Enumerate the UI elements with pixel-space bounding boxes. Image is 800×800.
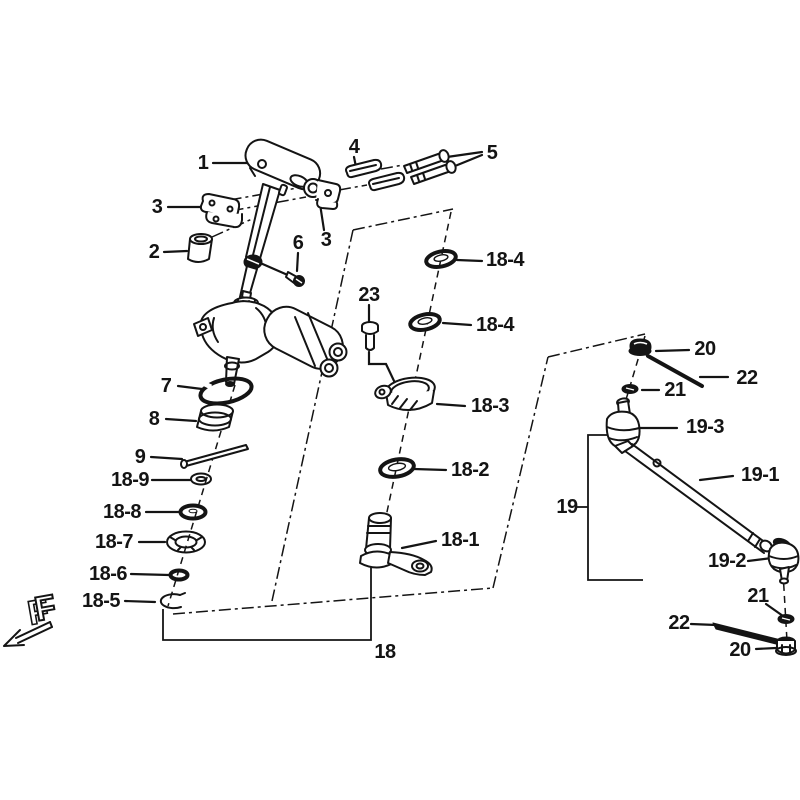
column-bushing: [188, 234, 212, 262]
part-label-19: 19: [556, 497, 577, 517]
part-label-20b: 20: [729, 640, 750, 660]
part-20-nut-upper: [629, 339, 651, 356]
part-label-9: 9: [135, 447, 146, 467]
part-18-8-washer: [181, 506, 206, 519]
part-label-18-1: 18-1: [441, 530, 479, 550]
bracket-18: [163, 567, 371, 640]
part-label-18-2: 18-2: [451, 460, 489, 480]
part-label-22a: 22: [736, 368, 757, 388]
part-label-19-2: 19-2: [708, 551, 746, 571]
part-label-4: 4: [349, 137, 360, 157]
part-label-18-9: 18-9: [111, 470, 149, 490]
part-18-4-grommet-upper: [425, 249, 457, 270]
part-label-18: 18: [374, 642, 395, 662]
steering-gearbox: [194, 291, 350, 387]
part-label-1: 1: [198, 153, 209, 173]
part-18-7-bearing: [167, 532, 205, 553]
part-8-boot: [197, 405, 233, 431]
part-18-5-snapring: [161, 593, 185, 608]
part-label-3a: 3: [152, 197, 163, 217]
part-label-19-3: 19-3: [686, 417, 724, 437]
part-label-21b: 21: [747, 586, 768, 606]
part-label-18-4a: 18-4: [486, 250, 524, 270]
part-label-8: 8: [149, 409, 160, 429]
bracket-19: [588, 435, 643, 580]
part-label-18-7: 18-7: [95, 532, 133, 552]
part-20-nut-lower: [776, 637, 796, 655]
part-label-5: 5: [487, 143, 498, 163]
part-21-washer-upper: [622, 385, 638, 394]
part-18-3-clamp-cap: [373, 375, 436, 410]
column-lower-stack: [161, 374, 254, 608]
part-label-6: 6: [293, 233, 304, 253]
part-label-7: 7: [161, 376, 172, 396]
bolts-5: [404, 149, 457, 184]
part-label-23: 23: [358, 285, 379, 305]
part-19-3-tie-rod-end: [607, 398, 640, 453]
part-21-washer-lower: [778, 615, 794, 624]
column-clamp-left: [201, 194, 242, 227]
part-18-2-oring: [379, 457, 415, 480]
part-18-6-oring: [171, 571, 188, 580]
part-9-pin: [181, 445, 248, 468]
sleeve-4: [346, 160, 404, 190]
part-label-18-8: 18-8: [103, 502, 141, 522]
part-label-19-1: 19-1: [741, 465, 779, 485]
part-18-4-grommet-lower: [409, 312, 441, 333]
parts-diagram: F F 1 3 2 4 5 6 3 23 7 8 9 18-9 18-8 18-…: [0, 0, 800, 800]
part-19-1-rod: [625, 444, 774, 554]
part-23-bolt: [362, 322, 378, 350]
part-label-20a: 20: [694, 339, 715, 359]
part-19-2-tie-rod-end: [769, 536, 799, 583]
bolt-6: [286, 272, 305, 287]
column-clamp-right: [304, 179, 340, 209]
part-7-retainer: [198, 374, 254, 407]
part-label-21a: 21: [664, 380, 685, 400]
part-label-2: 2: [149, 242, 160, 262]
part-label-18-3: 18-3: [471, 396, 509, 416]
part-label-3b: 3: [321, 230, 332, 250]
part-label-18-5: 18-5: [82, 591, 120, 611]
part-18-9-oring: [191, 474, 211, 485]
part-label-18-4b: 18-4: [476, 315, 514, 335]
part-label-18-6: 18-6: [89, 564, 127, 584]
front-direction-indicator: F F: [4, 588, 59, 646]
part-label-22b: 22: [668, 613, 689, 633]
